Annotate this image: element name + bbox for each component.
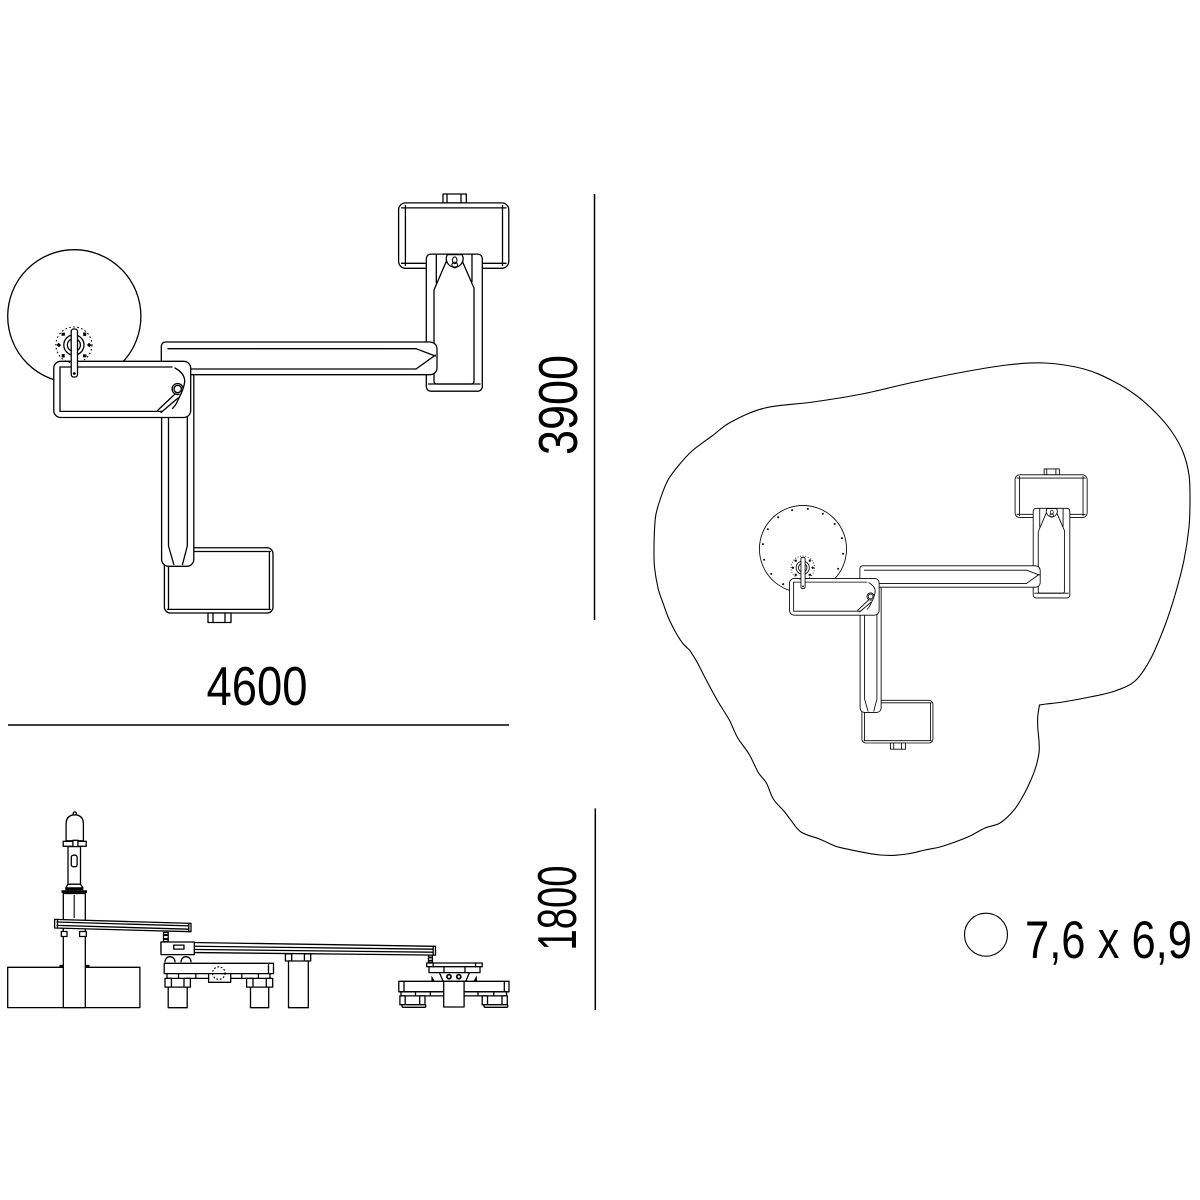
svg-text:4600: 4600: [207, 656, 308, 717]
svg-text:7,6 x 6,9: 7,6 x 6,9: [1025, 911, 1192, 970]
svg-text:3900: 3900: [528, 355, 589, 455]
svg-text:1800: 1800: [527, 866, 588, 951]
